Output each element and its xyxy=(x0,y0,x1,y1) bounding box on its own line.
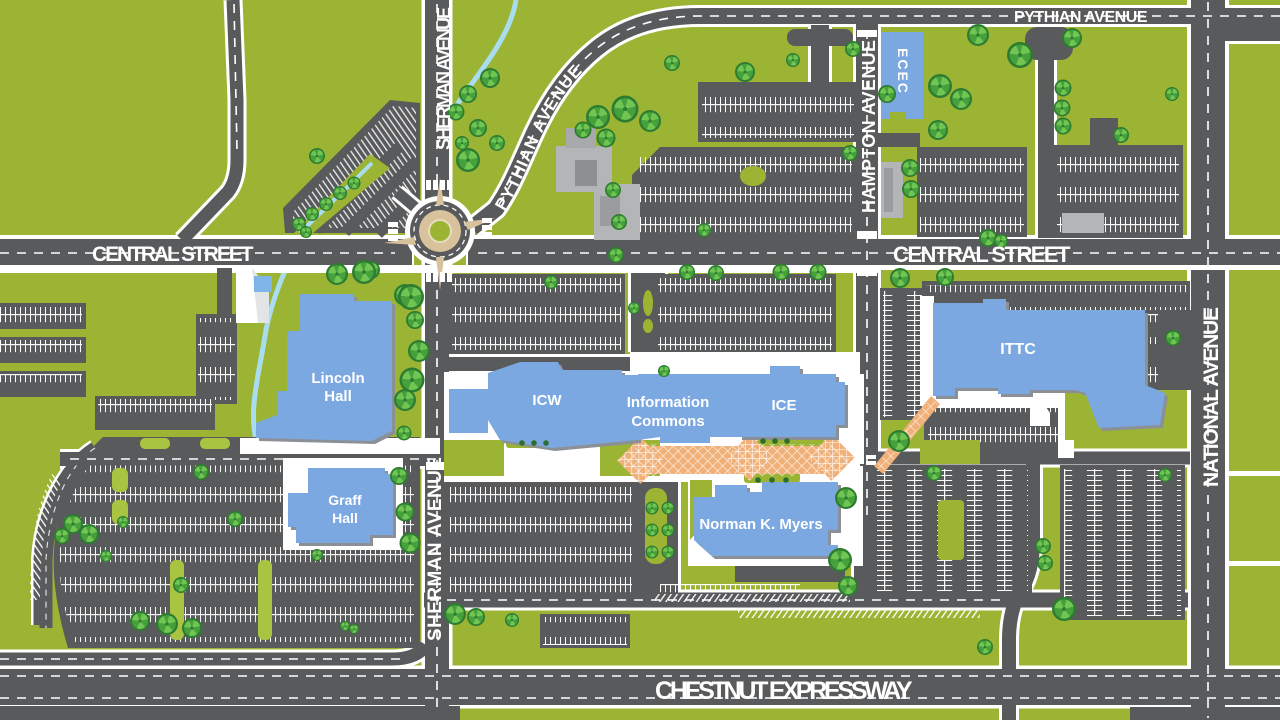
svg-text:Hall: Hall xyxy=(324,388,352,405)
svg-text:HAMPTON AVENUE: HAMPTON AVENUE xyxy=(859,40,879,213)
svg-text:ICW: ICW xyxy=(532,392,562,409)
svg-text:ECEC: ECEC xyxy=(895,48,911,95)
svg-text:Graff: Graff xyxy=(328,492,362,508)
svg-text:CHESTNUT EXPRESSWAY: CHESTNUT EXPRESSWAY xyxy=(655,677,913,705)
svg-text:Norman K. Myers: Norman K. Myers xyxy=(699,516,822,533)
svg-text:PYTHIAN AVENUE: PYTHIAN AVENUE xyxy=(1014,9,1148,26)
svg-text:SHERMAN AVENUE: SHERMAN AVENUE xyxy=(434,7,454,150)
svg-text:CENTRAL STREET: CENTRAL STREET xyxy=(92,243,254,266)
svg-text:NATIONAL AVENUE: NATIONAL AVENUE xyxy=(1200,307,1223,487)
svg-text:SHERMAN AVENUE: SHERMAN AVENUE xyxy=(425,457,446,641)
svg-text:Hall: Hall xyxy=(332,510,358,526)
svg-text:CENTRAL STREET: CENTRAL STREET xyxy=(893,242,1071,267)
svg-text:Lincoln: Lincoln xyxy=(311,370,364,387)
svg-text:ICE: ICE xyxy=(771,397,796,414)
svg-text:Commons: Commons xyxy=(631,413,704,430)
svg-text:Information: Information xyxy=(627,394,710,411)
svg-text:ITTC: ITTC xyxy=(1000,341,1036,358)
